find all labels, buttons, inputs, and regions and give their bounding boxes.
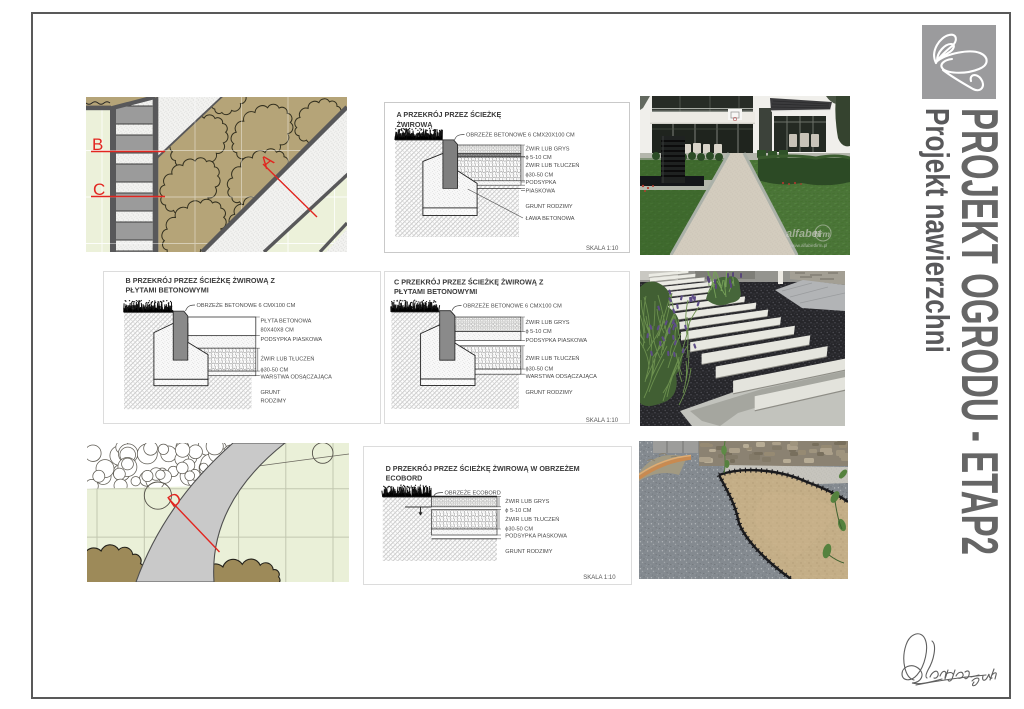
svg-text:ŁAWA BETONOWA: ŁAWA BETONOWA [526,216,575,222]
svg-text:A PRZEKRÓJ PRZEZ ŚCIEŻKĘ: A PRZEKRÓJ PRZEZ ŚCIEŻKĘ [397,110,502,119]
svg-text:ŻWIR LUB GRYS: ŻWIR LUB GRYS [526,319,570,326]
svg-text:PODSYPKA PIASKOWA: PODSYPKA PIASKOWA [261,337,323,343]
svg-text:SKALA 1:10: SKALA 1:10 [586,418,619,424]
svg-text:OBRZEŻE BETONOWE 6 CMX100 CM: OBRZEŻE BETONOWE 6 CMX100 CM [463,303,562,310]
svg-text:ϕ 5-10 CM: ϕ 5-10 CM [526,155,552,161]
svg-text:ŻWIROWĄ: ŻWIROWĄ [397,120,433,129]
svg-text:ŻWIR LUB TŁUCZEŃ: ŻWIR LUB TŁUCZEŃ [261,356,315,363]
svg-text:B PRZEKRÓJ PRZEZ ŚCIEŻKĘ ŻWIRO: B PRZEKRÓJ PRZEZ ŚCIEŻKĘ ŻWIROWĄ Z [126,276,276,285]
svg-text:GRUNT RODZIMY: GRUNT RODZIMY [526,204,573,210]
svg-text:www.alfabetfirm.pl: www.alfabetfirm.pl [790,243,827,248]
svg-text:ŻWIR LUB TŁUCZEŃ: ŻWIR LUB TŁUCZEŃ [526,355,580,362]
svg-text:PŁYTAMI BETONOWYMI: PŁYTAMI BETONOWYMI [126,286,209,295]
svg-text:PŁYTAMI BETONOWYMI: PŁYTAMI BETONOWYMI [394,287,477,296]
svg-text:80X40X8 CM: 80X40X8 CM [261,328,295,334]
svg-text:GRUNT RODZIMY: GRUNT RODZIMY [505,549,552,555]
svg-text:OBRZEŻE BETONOWE 6 CMX100 CM: OBRZEŻE BETONOWE 6 CMX100 CM [197,302,296,309]
svg-text:ϕ30-50 CM: ϕ30-50 CM [526,367,554,373]
svg-text:GRUNT RODZIMY: GRUNT RODZIMY [526,390,573,396]
svg-text:C PRZEKRÓJ PRZEZ ŚCIEŻKĘ ŻWIRO: C PRZEKRÓJ PRZEZ ŚCIEŻKĘ ŻWIROWĄ Z [394,278,544,287]
svg-text:ŻWIR LUB GRYS: ŻWIR LUB GRYS [526,146,570,153]
svg-text:OBRZEŻE ECOBORD: OBRZEŻE ECOBORD [445,490,501,497]
svg-text:PODSYPKA: PODSYPKA [526,180,557,186]
svg-text:WARSTWA ODSĄCZAJĄCA: WARSTWA ODSĄCZAJĄCA [261,375,333,381]
svg-text:ŻWIR LUB TŁUCZEŃ: ŻWIR LUB TŁUCZEŃ [526,162,580,169]
svg-text:SKALA 1:10: SKALA 1:10 [583,575,616,581]
svg-text:PODSYPKA PIASKOWA: PODSYPKA PIASKOWA [526,338,588,344]
svg-text:ϕ30-50 CM: ϕ30-50 CM [261,368,289,374]
svg-text:ECOBORD: ECOBORD [386,474,423,483]
svg-text:firm: firm [814,229,831,239]
svg-text:ϕ30-50 CM: ϕ30-50 CM [526,173,554,179]
svg-text:PODSYPKA PIASKOWA: PODSYPKA PIASKOWA [505,533,567,539]
svg-text:ϕ 5-10 CM: ϕ 5-10 CM [526,329,552,335]
svg-text:RODZIMY: RODZIMY [261,399,287,405]
svg-text:PIASKOWA: PIASKOWA [526,189,556,195]
svg-text:ŻWIR LUB GRYS: ŻWIR LUB GRYS [505,498,549,505]
svg-text:GRUNT: GRUNT [261,390,281,396]
svg-text:WARSTWA ODSĄCZAJĄCA: WARSTWA ODSĄCZAJĄCA [526,374,598,380]
svg-text:ϕ30-50 CM: ϕ30-50 CM [505,526,533,532]
svg-text:SKALA 1:10: SKALA 1:10 [586,246,619,252]
svg-text:ϕ 5-10 CM: ϕ 5-10 CM [505,508,531,514]
svg-text:D PRZEKRÓJ PRZEZ ŚCIEŻKĘ ŻWIRO: D PRZEKRÓJ PRZEZ ŚCIEŻKĘ ŻWIROWĄ W OBRZE… [386,464,580,473]
svg-text:ŻWIR LUB TŁUCZEŃ: ŻWIR LUB TŁUCZEŃ [505,516,559,523]
svg-text:OBRZEŻE BETONOWE 6 CMX20X100 C: OBRZEŻE BETONOWE 6 CMX20X100 CM [466,132,575,139]
svg-text:PŁYTA BETONOWA: PŁYTA BETONOWA [261,319,312,325]
